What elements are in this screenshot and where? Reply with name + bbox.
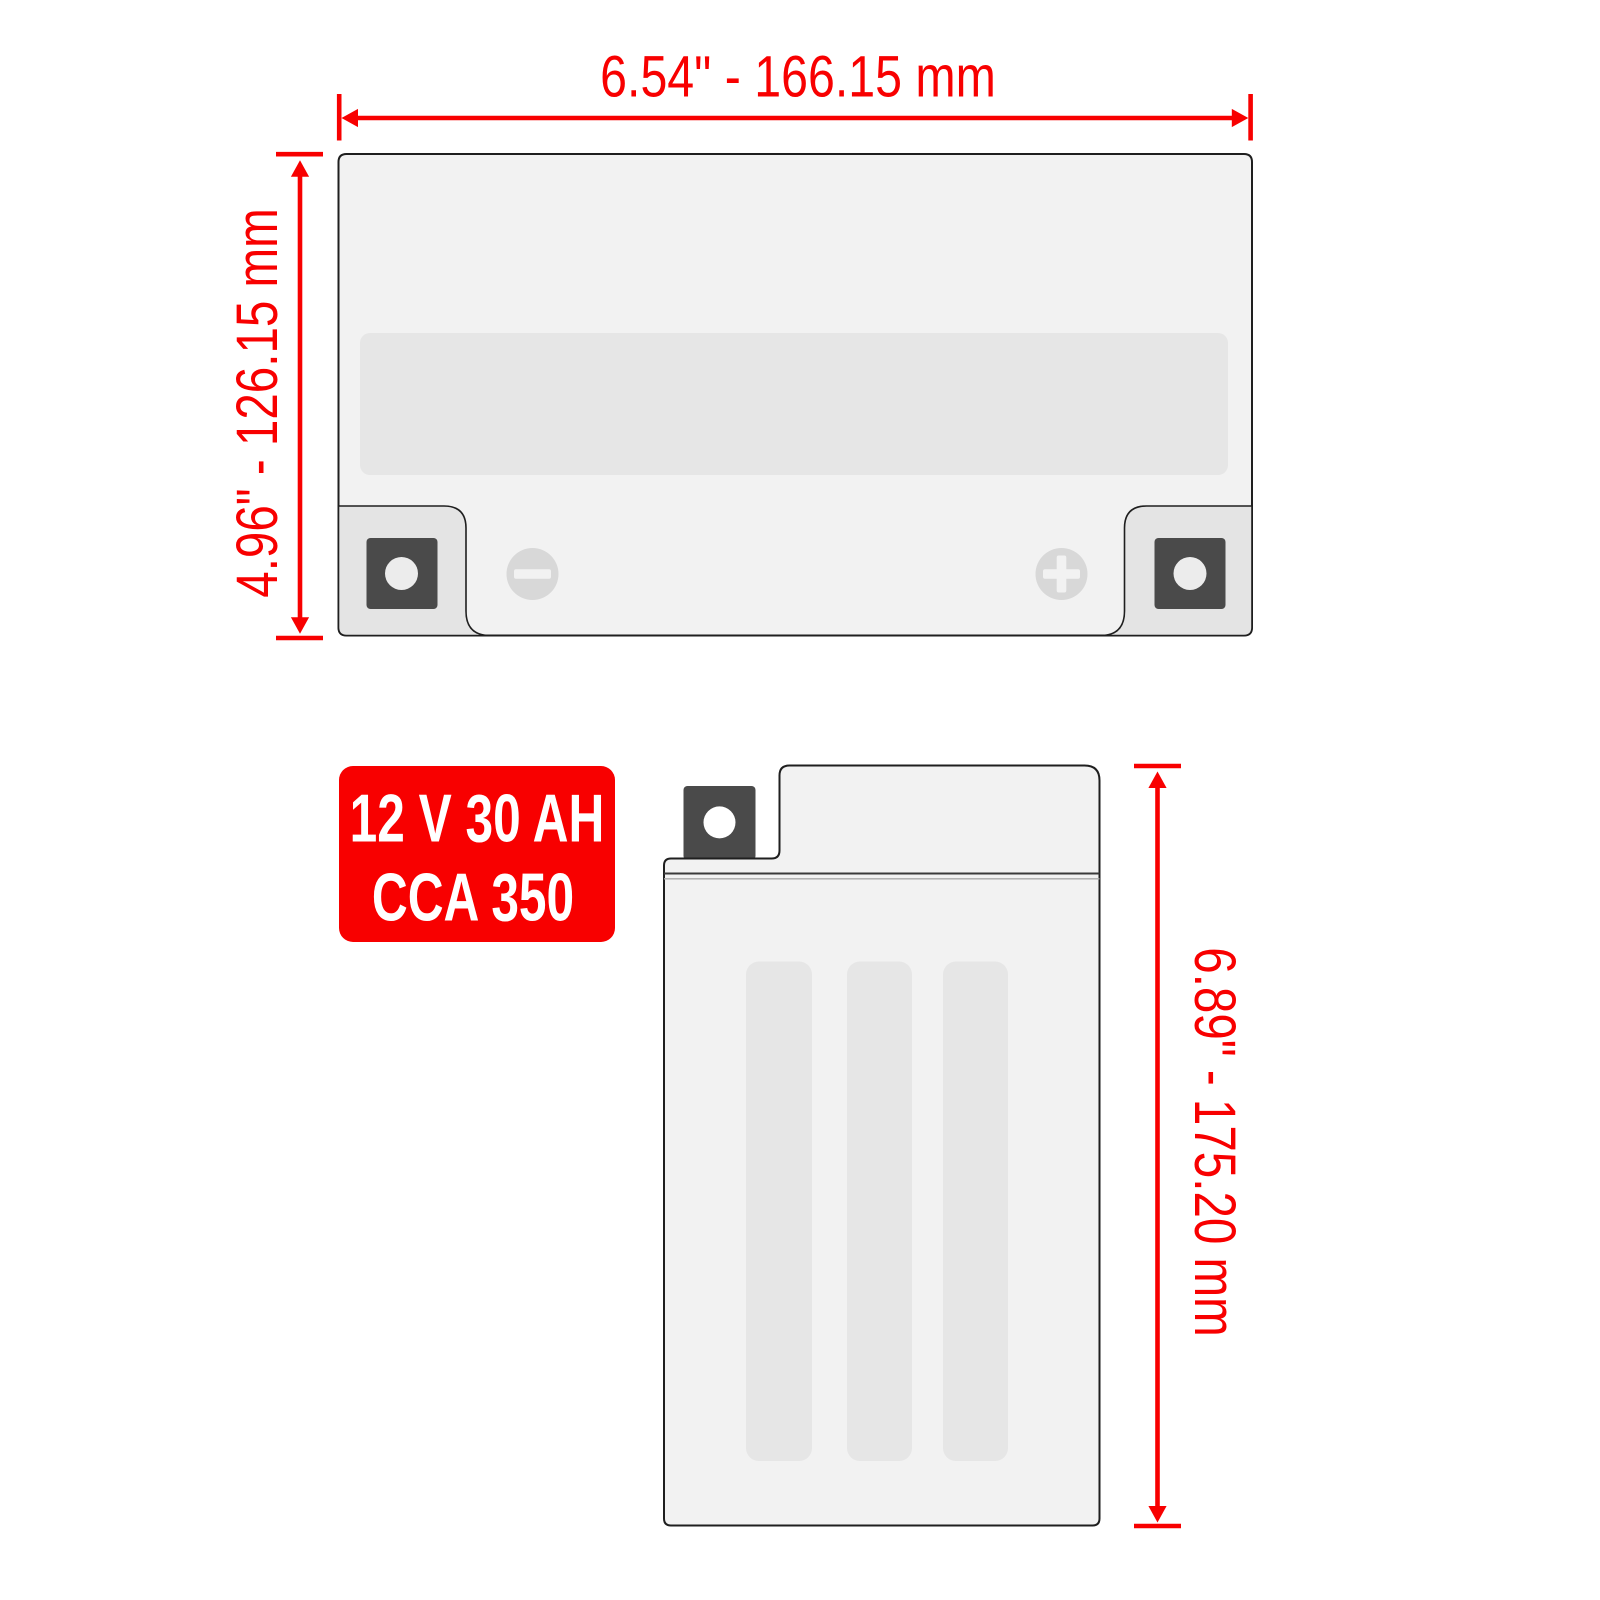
svg-text:4.96" - 126.15 mm: 4.96" - 126.15 mm xyxy=(226,208,291,597)
svg-text:CCA 350: CCA 350 xyxy=(372,859,574,936)
svg-text:6.54" - 166.15 mm: 6.54" - 166.15 mm xyxy=(600,45,996,109)
svg-text:12 V 30 AH: 12 V 30 AH xyxy=(350,780,605,857)
svg-text:6.89" - 175.20 mm: 6.89" - 175.20 mm xyxy=(1182,947,1247,1336)
